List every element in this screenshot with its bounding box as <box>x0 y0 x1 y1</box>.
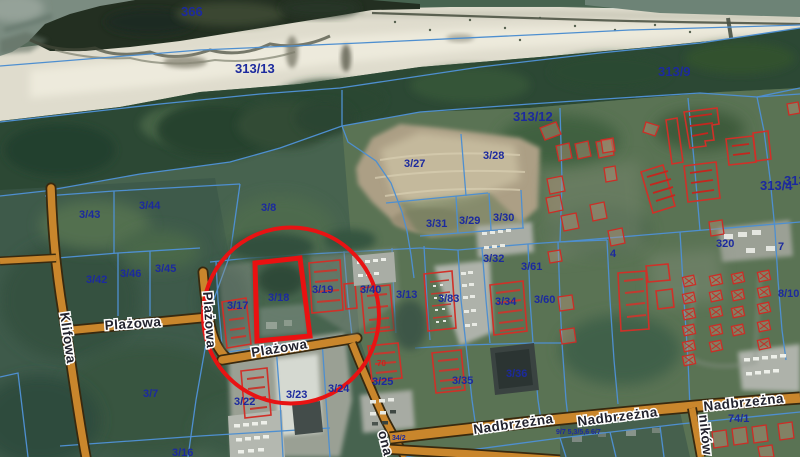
svg-text:3/61: 3/61 <box>521 261 542 273</box>
svg-text:3/22: 3/22 <box>234 396 255 408</box>
svg-text:3/7: 3/7 <box>143 388 158 400</box>
svg-text:3/16: 3/16 <box>172 447 193 457</box>
svg-text:3/46: 3/46 <box>120 268 141 280</box>
svg-text:3/83: 3/83 <box>438 293 459 305</box>
svg-text:3/40: 3/40 <box>360 284 381 296</box>
svg-text:70: 70 <box>377 359 386 368</box>
svg-text:34/2: 34/2 <box>392 435 406 442</box>
svg-text:9/7 5,3/5,6 6/7: 9/7 5,3/5,6 6/7 <box>556 429 601 436</box>
svg-text:3/23: 3/23 <box>286 389 307 401</box>
svg-text:366: 366 <box>181 4 203 19</box>
svg-text:4: 4 <box>610 248 617 260</box>
svg-text:3/19: 3/19 <box>312 284 333 296</box>
svg-text:313/13: 313/13 <box>235 61 275 76</box>
svg-text:3/27: 3/27 <box>404 158 425 170</box>
svg-text:3/45: 3/45 <box>155 263 176 275</box>
svg-text:3/8: 3/8 <box>261 202 276 214</box>
svg-text:3/31: 3/31 <box>426 218 447 230</box>
svg-text:313/12: 313/12 <box>513 109 553 124</box>
svg-text:3/32: 3/32 <box>483 253 504 265</box>
svg-text:320: 320 <box>716 238 734 250</box>
svg-text:3/60: 3/60 <box>534 294 555 306</box>
svg-text:8/10: 8/10 <box>778 288 799 300</box>
svg-text:74/1: 74/1 <box>728 413 749 425</box>
svg-text:7: 7 <box>778 241 784 253</box>
svg-text:3/43: 3/43 <box>79 209 100 221</box>
svg-text:3/28: 3/28 <box>483 150 504 162</box>
svg-text:3/44: 3/44 <box>139 200 161 212</box>
svg-text:3/36: 3/36 <box>506 368 527 380</box>
svg-text:3/13: 3/13 <box>396 289 417 301</box>
svg-text:3/25: 3/25 <box>372 376 393 388</box>
svg-text:313: 313 <box>784 173 800 188</box>
svg-text:3/30: 3/30 <box>493 212 514 224</box>
svg-text:313/9: 313/9 <box>658 64 691 79</box>
svg-text:3/35: 3/35 <box>452 375 473 387</box>
svg-text:3/34: 3/34 <box>495 296 517 308</box>
svg-text:3/42: 3/42 <box>86 274 107 286</box>
svg-text:3/17: 3/17 <box>227 300 248 312</box>
svg-text:3/24: 3/24 <box>328 383 350 395</box>
svg-text:3/29: 3/29 <box>459 215 480 227</box>
svg-text:3/18: 3/18 <box>268 292 289 304</box>
